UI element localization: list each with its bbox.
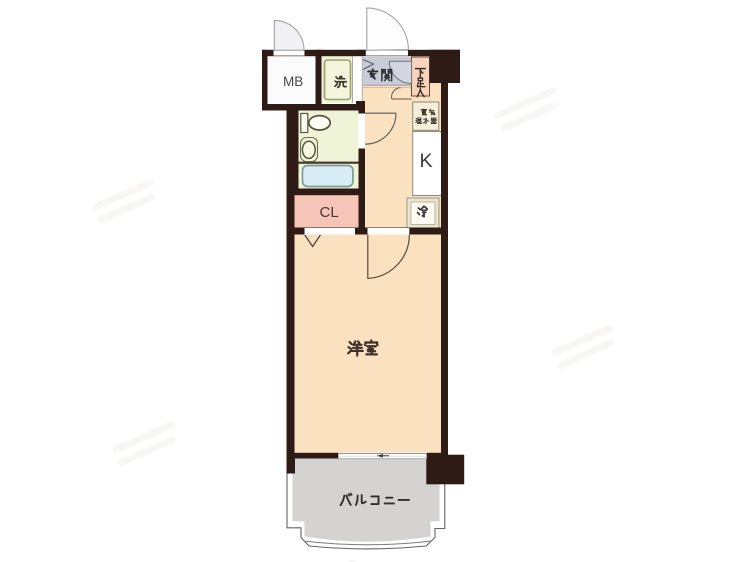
svg-text:K: K (420, 150, 433, 172)
svg-text:CL: CL (320, 204, 339, 221)
svg-text:MB: MB (283, 74, 303, 89)
